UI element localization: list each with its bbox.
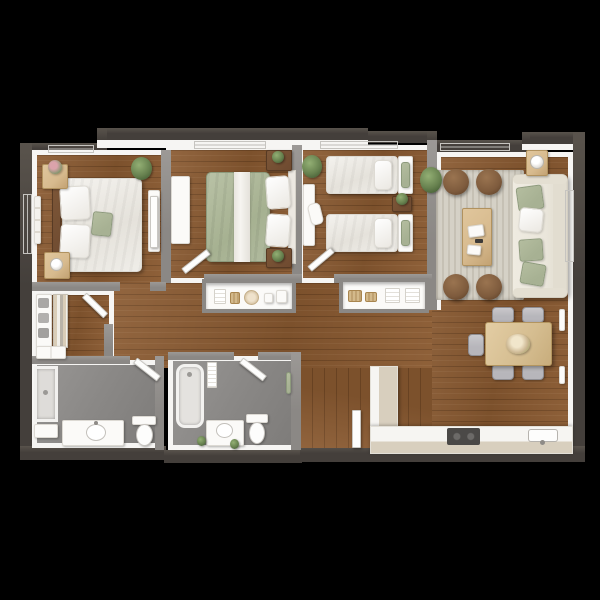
kitchen-counter-left-arm	[370, 366, 398, 428]
bed2-nightstand-plant-top	[272, 151, 284, 163]
ottoman-top-right	[476, 169, 502, 195]
wall-bedroom1-hall-b	[150, 282, 166, 291]
kitchen-faucet-icon	[540, 440, 545, 445]
bedroom1-plant	[131, 157, 152, 180]
sofa-arm-bottom	[513, 288, 567, 297]
closet-hanging-clothes	[53, 294, 68, 348]
storage-basket-1	[348, 290, 362, 302]
bedroom2-dresser	[171, 176, 190, 244]
linen-stack-1	[385, 288, 400, 303]
dining-chair-bottom-2	[522, 364, 544, 380]
front-door	[352, 410, 361, 448]
bath1-faucet-icon	[94, 421, 98, 425]
bed1-sage-throw-pillow	[91, 211, 113, 237]
folded-clothes-1	[38, 298, 49, 308]
wall-bedroom1-bedroom2	[161, 150, 171, 283]
folded-clothes-3	[38, 328, 49, 338]
bed1-pillow-top	[59, 185, 91, 221]
dining-centerpiece-flowers	[506, 334, 530, 354]
bath2-sink	[216, 423, 233, 438]
living-window-right	[565, 190, 574, 262]
bedroom1-door	[150, 196, 158, 248]
sofa-pillow-sage-2	[518, 238, 543, 262]
plate-stack	[214, 289, 226, 304]
bath1-wall-niche	[34, 424, 58, 438]
exterior-wall-bottom-1	[20, 446, 166, 460]
bed3a-sage-cushion	[401, 162, 410, 188]
sofa	[512, 174, 568, 298]
bed3b-pillow	[374, 218, 392, 248]
dining-chair-top-2	[522, 307, 544, 323]
floor-plan-render	[0, 0, 600, 600]
living-window-top	[440, 143, 510, 151]
bed3b-sage-cushion	[401, 220, 410, 246]
sofa-pillow-sage-3	[519, 261, 546, 287]
cooktop	[447, 428, 480, 445]
coffee-table-paper	[467, 244, 482, 255]
wall-bedroom1-hall-a	[32, 282, 120, 291]
bed2-pillow-top	[265, 175, 291, 210]
sofa-pillow-cream	[518, 207, 544, 233]
bedroom1-window-left	[23, 194, 32, 254]
exterior-wall-top-2	[97, 128, 368, 140]
bath1-sink	[86, 424, 106, 441]
storage-basket-2	[365, 292, 377, 302]
ottoman-bottom-left	[443, 274, 469, 300]
sofa-arm-top	[513, 175, 567, 184]
bedroom3-plant	[302, 155, 322, 178]
dining-chair-left	[468, 334, 484, 356]
closet-shelving-unit	[36, 294, 52, 348]
bed2-pillow-bottom	[265, 213, 291, 248]
ottoman-bottom-right	[476, 274, 502, 300]
bath2-toilet-bowl	[249, 422, 265, 444]
bath1-shower-drain-icon	[43, 390, 48, 395]
folded-clothes-2	[38, 313, 49, 323]
hall-niche-dishes	[202, 279, 296, 313]
wall-bath2-top-a	[168, 352, 234, 360]
coffee-table-book	[467, 224, 485, 238]
bed2-nightstand-plant-bottom	[272, 250, 284, 262]
coffee-table-remote	[475, 239, 483, 243]
living-plant	[420, 167, 442, 193]
bedroom1-window-top	[48, 145, 94, 153]
exterior-wall-right	[573, 132, 585, 462]
side-table-lamp-icon	[530, 155, 544, 169]
bath2-tub-drain-icon	[187, 372, 192, 377]
round-plate	[244, 290, 259, 305]
bedroom3-window	[320, 141, 398, 149]
bath2-towel-rack	[207, 362, 217, 388]
linen-stack-2	[405, 288, 420, 303]
dining-wall-art-2	[559, 366, 565, 384]
wall-bath2-right	[291, 352, 301, 450]
bedroom2-window	[194, 141, 266, 149]
bed3a-pillow	[374, 160, 392, 190]
exterior-wall-left	[20, 143, 32, 460]
pitcher	[276, 290, 287, 303]
flower-vase-icon	[48, 160, 62, 174]
dining-wall-art-1	[559, 309, 565, 331]
bath1-toilet-bowl	[136, 424, 153, 446]
cup-set	[264, 293, 273, 303]
bedroom1-wall-art	[34, 196, 41, 244]
exterior-wall-bottom-2	[164, 450, 302, 463]
ottoman-top-left	[443, 169, 469, 195]
coffee-table	[462, 208, 492, 266]
bath2-sage-wall-art	[286, 372, 291, 394]
closet-drawer-unit	[36, 346, 66, 359]
bath2-plant-left	[197, 436, 206, 446]
wall-bath1-right	[155, 356, 164, 450]
table-lamp-icon	[50, 258, 63, 271]
bath2-plant-right	[230, 439, 239, 449]
dining-chair-top-1	[492, 307, 514, 323]
bed2-white-runner	[234, 172, 250, 262]
bed3-nightstand-plant	[396, 193, 408, 205]
bowl-stack	[230, 292, 240, 304]
hall-niche-linens	[339, 278, 429, 313]
dining-chair-bottom-1	[492, 364, 514, 380]
